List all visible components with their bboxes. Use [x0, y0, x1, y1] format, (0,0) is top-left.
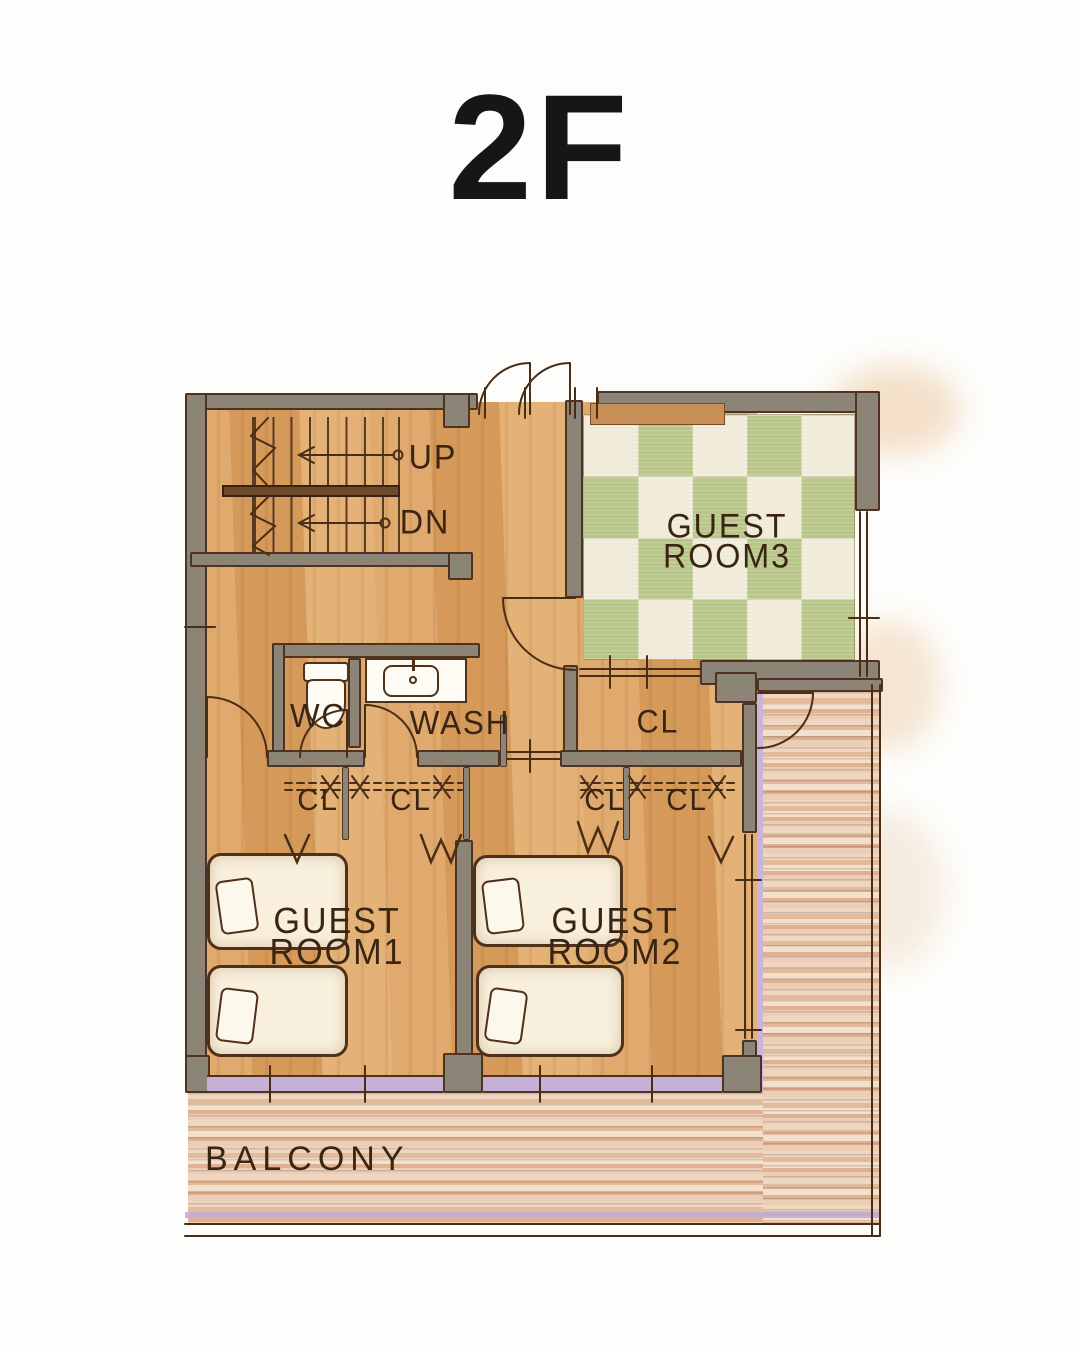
- balcony-outer-edge: [185, 1212, 879, 1218]
- balcony-deck-right: [763, 692, 879, 1225]
- stair-flight-upper: [252, 417, 400, 485]
- wall-segment-wc-left: [272, 643, 285, 767]
- wall-lintel-band: [590, 403, 725, 425]
- room-label-closet-2: CL: [390, 782, 431, 818]
- room-label-guest2: ROOM2: [548, 931, 683, 973]
- wall-segment-wash-top: [272, 643, 480, 658]
- wall-segment-stair-bottom: [190, 552, 473, 567]
- room-label-closet-1: CL: [297, 782, 338, 818]
- stair-flight-lower: [252, 497, 400, 553]
- faucet-stem-icon: [412, 659, 415, 671]
- wall-segment-top-left: [185, 393, 478, 410]
- pillow-icon: [481, 877, 525, 935]
- wall-balcony-right-top: [757, 678, 883, 692]
- wall-segment-hall-south-c: [560, 750, 742, 767]
- sink-counter: [365, 658, 467, 703]
- pillow-icon: [215, 987, 259, 1045]
- stair-landing: [222, 485, 400, 497]
- room-label-guest1: ROOM1: [270, 931, 405, 973]
- wall-pier: [448, 552, 473, 580]
- wall-block-bottom-center: [443, 1053, 483, 1093]
- wall-segment-guest2-right-upper: [742, 703, 757, 833]
- sliding-window-guest2: [483, 1075, 722, 1093]
- bed-guest2-b: [476, 965, 624, 1057]
- faucet-icon: [409, 676, 417, 684]
- pillow-icon: [214, 877, 259, 936]
- wall-pier-top: [443, 393, 470, 428]
- room-label-closet-hall: CL: [637, 704, 680, 741]
- room-label-wash: WASH: [410, 704, 510, 742]
- page-title: 2F: [0, 72, 1080, 222]
- wall-segment-hall-south-a: [267, 750, 365, 767]
- pillow-icon: [483, 987, 528, 1046]
- sliding-window-guest1: [207, 1075, 443, 1093]
- room-label-wc: WC: [290, 697, 346, 735]
- room-label-closet-4: CL: [666, 782, 707, 818]
- room-label-guest3: ROOM3: [663, 538, 791, 577]
- room-label-balcony: BALCONY: [205, 1140, 410, 1179]
- stair-down-label: DN: [400, 504, 450, 543]
- bed-guest1-b: [207, 965, 348, 1057]
- wall-segment-guest3-right: [855, 391, 880, 511]
- wall-segment-hall-south-b: [417, 750, 500, 767]
- stair-up-label: UP: [409, 439, 458, 478]
- floor-plan: UP DN GUEST ROOM3 WC WASH CL CL CL CL CL…: [185, 390, 905, 1245]
- balcony-inner-edge: [757, 692, 763, 1093]
- wall-segment-left: [185, 393, 207, 1093]
- wall-segment-hall-guest3: [565, 400, 583, 598]
- room-label-closet-3: CL: [584, 782, 625, 818]
- wall-block-closet-hall: [715, 672, 757, 703]
- wall-guest1-guest2-upper: [463, 767, 470, 840]
- wall-closet-divider-left: [342, 767, 349, 840]
- wall-segment-wc-wash-divider: [348, 658, 361, 748]
- wall-block-bottom-right: [722, 1055, 762, 1093]
- floor-plan-page: 2F: [0, 0, 1080, 1350]
